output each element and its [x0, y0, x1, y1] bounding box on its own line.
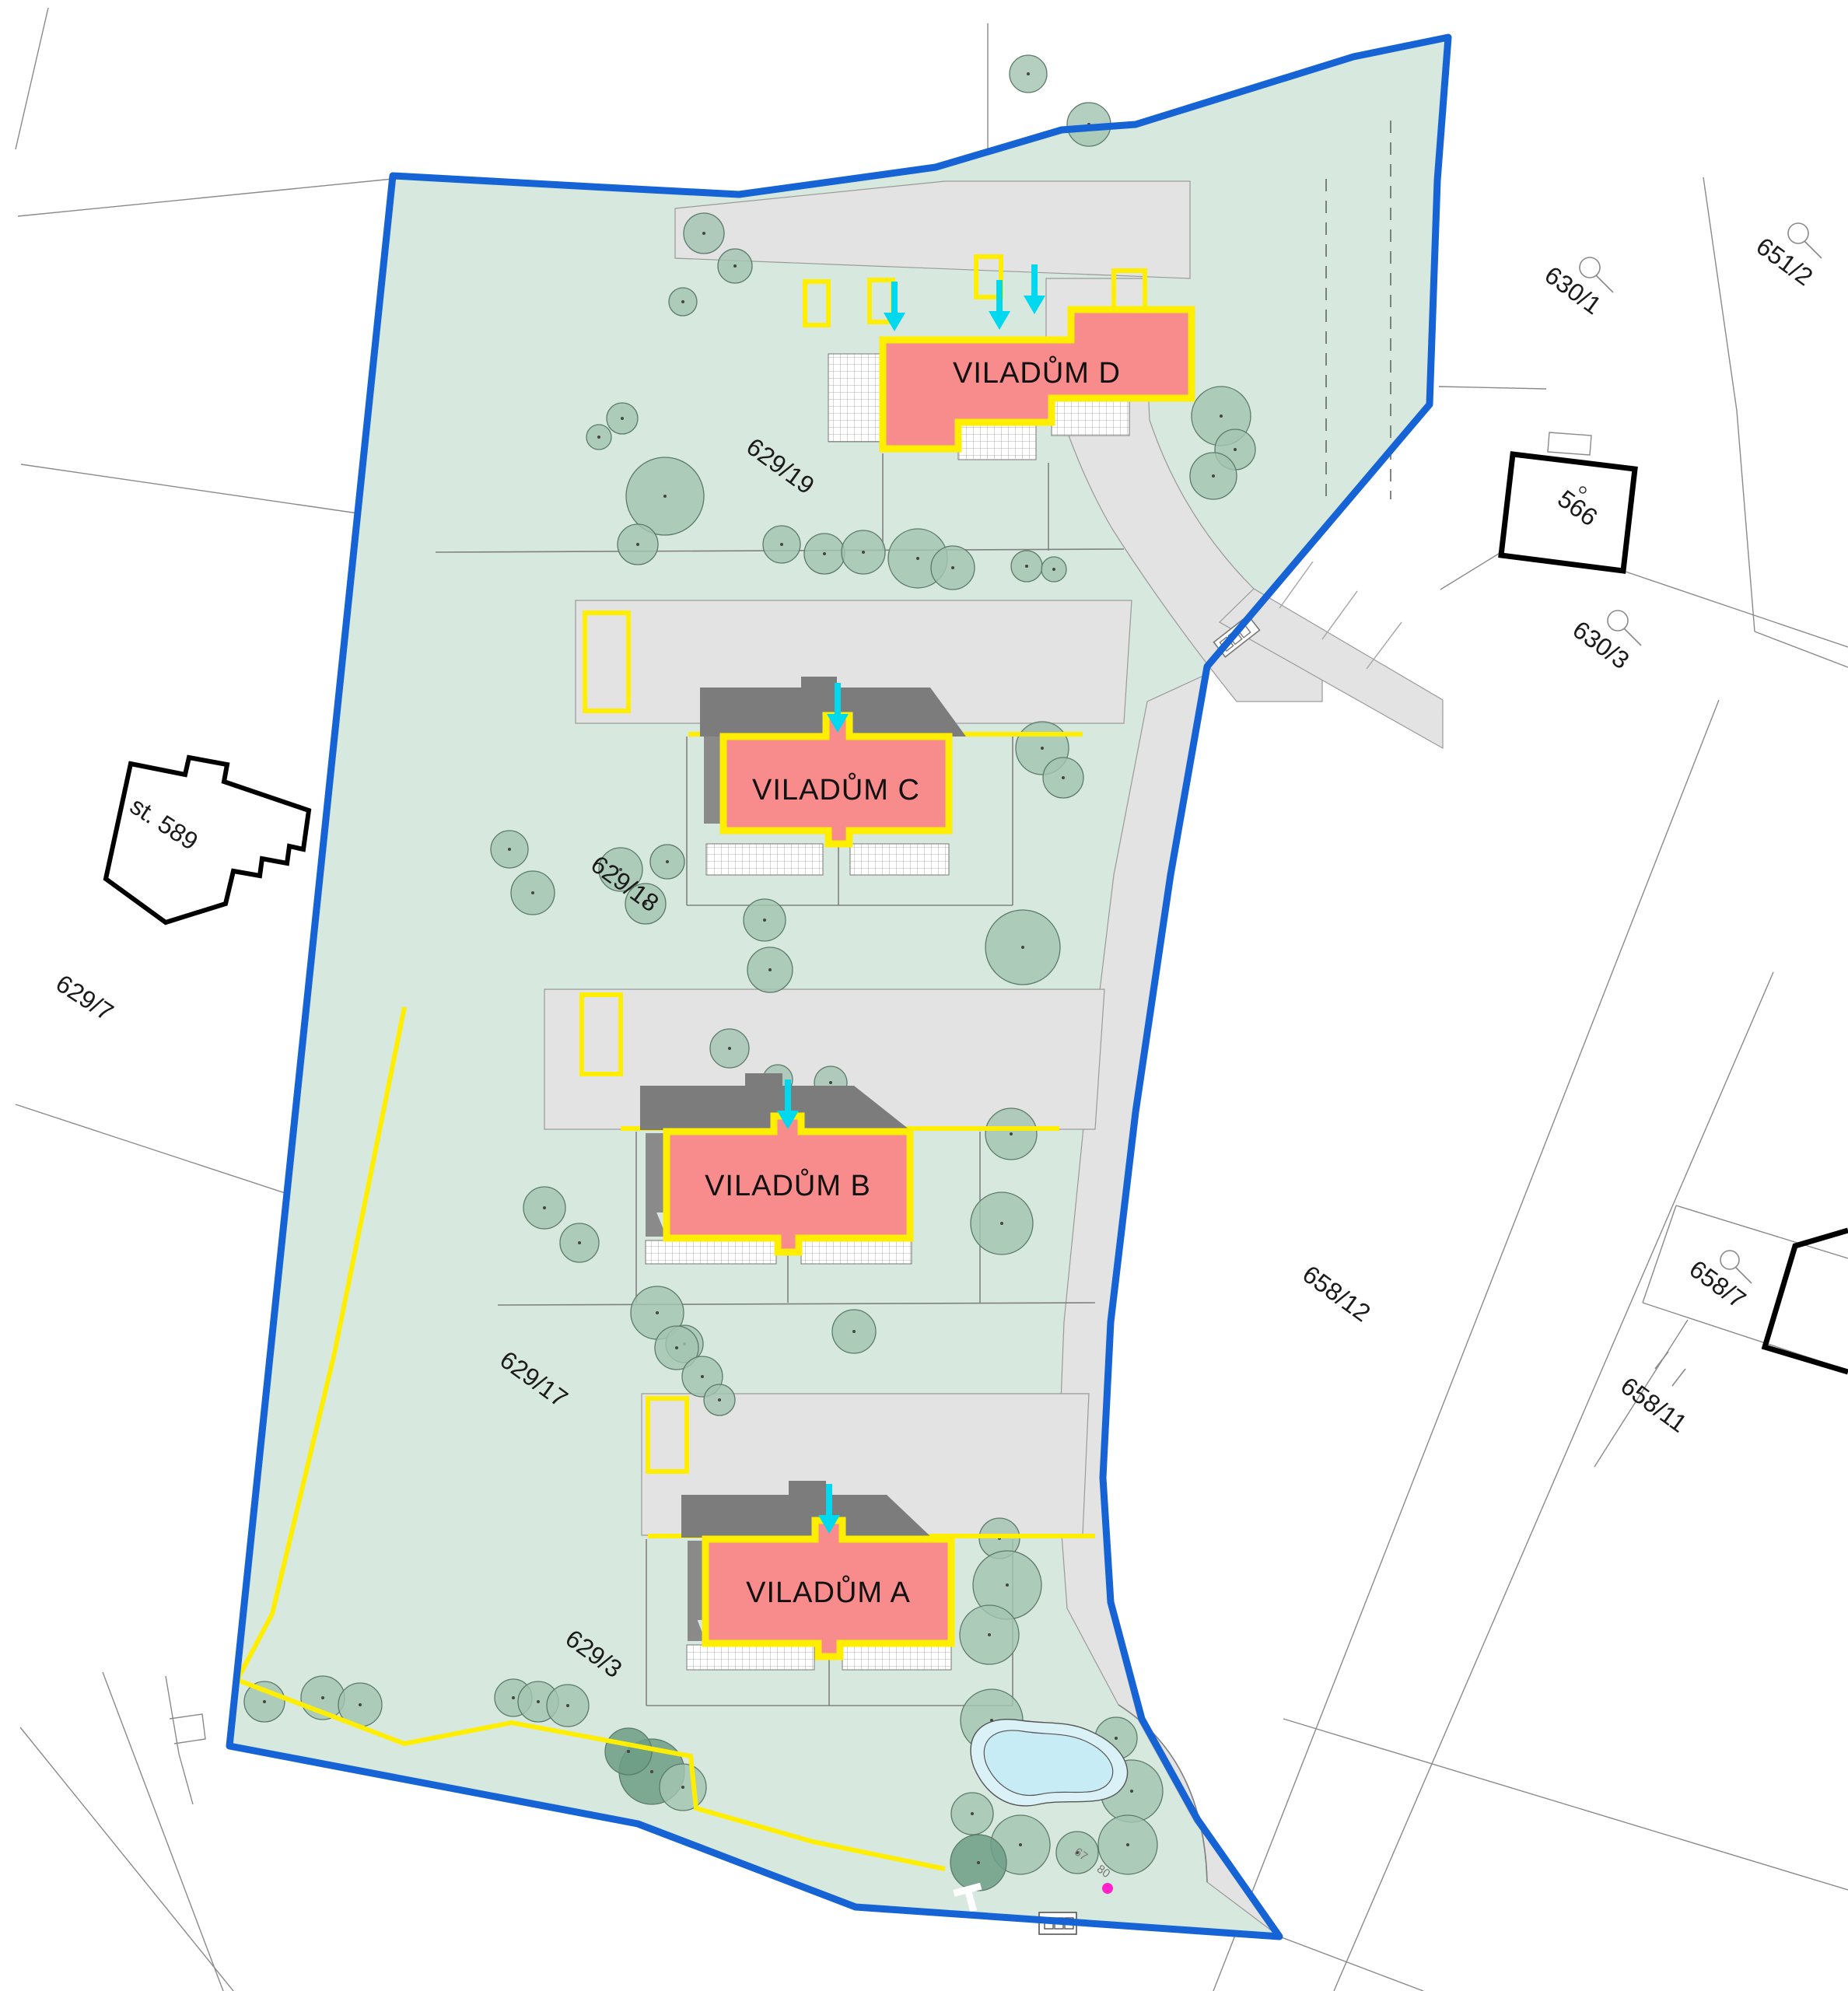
terrace: [706, 844, 823, 875]
tree-icon: [832, 1310, 876, 1353]
tree-icon: [744, 899, 786, 941]
tree-icon: [763, 526, 800, 563]
building-label-c: VILADŮM C: [752, 772, 920, 807]
parcel-label-658-11: 658/11: [1615, 1371, 1692, 1437]
parcel-label-658-7: 658/7: [1684, 1254, 1751, 1314]
parcel-label-658-12: 658/12: [1297, 1260, 1375, 1328]
tree-icon: [1041, 557, 1066, 582]
tree-icon: [931, 546, 975, 590]
terrace: [958, 422, 1036, 460]
tree-icon: [985, 910, 1060, 985]
tree-icon: [950, 1835, 1006, 1891]
tree-icon: [1043, 758, 1083, 798]
tree-icon: [804, 534, 845, 574]
tree-icon: [747, 947, 793, 992]
building-viladum-b: VILADŮM B: [640, 1073, 912, 1264]
site-plan-page: VILADŮM D VILADŮM C VILADŮM B VILADŮM A: [0, 0, 1848, 1991]
boundary-slash-icon: [1655, 1352, 1685, 1386]
tree-icon: [718, 249, 752, 283]
tree-icon: [491, 831, 528, 868]
tree-icon: [618, 524, 658, 565]
building-label-b: VILADŮM B: [705, 1167, 871, 1202]
tree-icon: [951, 1793, 993, 1835]
building-label-d: VILADŮM D: [953, 355, 1121, 390]
building-st589: [106, 758, 309, 922]
tree-icon: [511, 871, 555, 915]
tree-icon: [1010, 55, 1047, 93]
tree-icon: [1190, 453, 1237, 499]
terrace: [687, 1645, 814, 1670]
terrace: [842, 1645, 951, 1670]
terrace: [850, 844, 949, 875]
site-plan-map: VILADŮM D VILADŮM C VILADŮM B VILADŮM A: [0, 0, 1848, 1991]
tree-icon: [650, 845, 684, 879]
tree-icon: [586, 425, 611, 450]
building-viladum-c: VILADŮM C: [700, 677, 966, 875]
terrace: [646, 1240, 776, 1264]
tree-icon: [985, 1108, 1037, 1160]
parcel-label-629-7: 629/7: [51, 969, 119, 1027]
tree-icon: [710, 1029, 749, 1068]
survey-point-icon: [1102, 1883, 1113, 1894]
parcel-label-630-3: 630/3: [1567, 615, 1634, 674]
building-label-a: VILADŮM A: [746, 1574, 911, 1609]
tree-icon: [960, 1605, 1019, 1664]
tree-icon: [626, 457, 704, 535]
tree-icon: [547, 1685, 589, 1727]
tree-icon: [605, 1728, 652, 1775]
terrace: [801, 1240, 912, 1264]
terrace: [828, 354, 883, 442]
tree-icon: [1011, 551, 1042, 582]
tree-icon: [523, 1187, 565, 1229]
tree-icon: [684, 213, 724, 254]
building-658-7: [1765, 1230, 1848, 1372]
tree-icon: [244, 1681, 285, 1722]
parcel-label-630-1: 630/1: [1539, 261, 1606, 320]
tree-icon: [560, 1223, 599, 1262]
tree-icon: [669, 288, 697, 316]
tree-icon: [660, 1764, 706, 1811]
tree-icon: [842, 530, 885, 574]
tree-icon: [607, 403, 638, 434]
terrace: [1052, 398, 1129, 436]
parcel-label-651-2: 651/2: [1751, 232, 1818, 291]
tree-icon: [971, 1192, 1033, 1254]
parcel-loop-markers: [1580, 223, 1822, 1386]
tree-icon: [704, 1384, 735, 1415]
